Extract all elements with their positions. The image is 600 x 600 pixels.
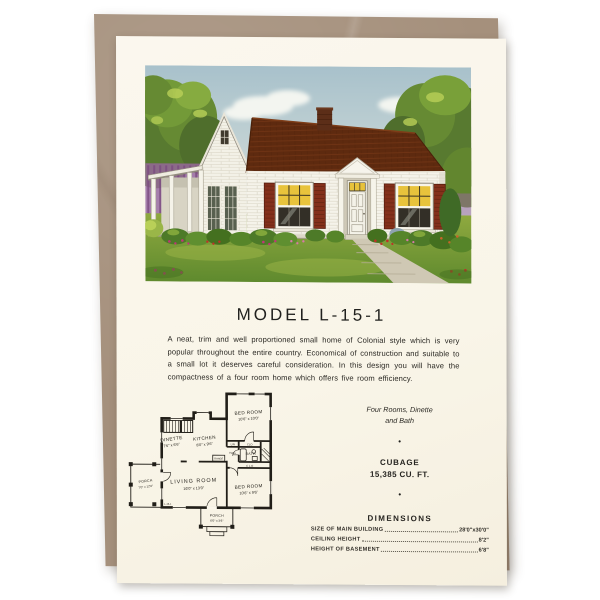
dimension-label: SIZE OF MAIN BUILDING	[311, 526, 384, 533]
room-dims-rear-porch: 6'0" x 3'6"	[210, 519, 223, 523]
closet-label-clo: CLO	[247, 442, 253, 446]
dimension-value: 6'8"	[479, 548, 489, 554]
portico	[335, 158, 379, 240]
cubage-value: 15,385 CU. FT.	[311, 469, 489, 479]
room-label-bath: BATH	[246, 452, 256, 456]
room-summary: Four Rooms, Dinette and Bath	[311, 403, 489, 426]
front-door	[347, 181, 367, 235]
room-dims-bedroom-1: 10'6" x 10'0"	[238, 416, 260, 421]
chimney	[316, 107, 333, 130]
room-dims-bedroom-2: 10'6" x 9'6"	[239, 490, 259, 495]
room-dims-kitchen: 8'0" x 9'6"	[196, 442, 214, 448]
dimension-row-main-building: SIZE OF MAIN BUILDING 28'0"x30'0"	[311, 526, 489, 533]
dotted-leader	[361, 541, 477, 543]
room-label-bedroom-2: BED ROOM	[234, 483, 263, 490]
room-label-living: LIVING ROOM	[170, 477, 217, 485]
room-label-rear-porch: PORCH	[210, 514, 224, 518]
dimension-label: HEIGHT OF BASEMENT	[311, 546, 380, 552]
room-label-bedroom-1: BED ROOM	[234, 409, 263, 416]
model-title: MODEL L-15-1	[116, 304, 506, 327]
dotted-leader	[381, 551, 478, 553]
model-description: A neat, trim and well proportioned small…	[168, 333, 460, 386]
dimension-label: CEILING HEIGHT	[311, 536, 361, 542]
closet-label-lin: LIN	[231, 442, 235, 446]
room-label-hall: HALL	[229, 451, 236, 455]
plan-labels: BED ROOM 10'6" x 10'0" KITCHEN 8'0" x 9'…	[138, 408, 263, 523]
dimension-value: 28'0"x30'0"	[459, 527, 489, 533]
dimension-row-ceiling-height: CEILING HEIGHT 8'2"	[311, 536, 489, 543]
house-illustration	[145, 65, 471, 283]
range-label: RANGE	[214, 457, 223, 460]
plan-model-label: L-15-1	[164, 503, 172, 506]
bullet-separator: •	[311, 490, 489, 499]
room-summary-line-2: and Bath	[311, 414, 489, 426]
floor-plan: BED ROOM 10'6" x 10'0" KITCHEN 8'0" x 9'…	[121, 388, 325, 561]
cubage-heading: CUBAGE	[311, 457, 489, 467]
dotted-leader	[384, 531, 458, 533]
closet-label-clo-2: C L O	[246, 464, 253, 468]
room-label-dinette: DINETTE	[160, 435, 183, 443]
room-label-kitchen: KITCHEN	[193, 435, 216, 442]
dimension-value: 8'2"	[479, 538, 489, 544]
bullet-separator: •	[311, 437, 489, 446]
dimensions-heading: DIMENSIONS	[311, 513, 489, 523]
dimension-row-basement-height: HEIGHT OF BASEMENT 6'8"	[311, 546, 489, 553]
room-dims-dinette: 7'6" x 6'6"	[163, 442, 181, 448]
room-dims-living: 16'0" x 13'0"	[183, 486, 205, 491]
house-plan-card: MODEL L-15-1 A neat, trim and well propo…	[116, 36, 507, 586]
shuttered-window-left	[264, 182, 325, 232]
shuttered-window-right	[384, 183, 445, 233]
room-dims-side-porch: 7'0" x 12'0"	[138, 484, 153, 490]
specs-column: Four Rooms, Dinette and Bath • CUBAGE 15…	[311, 403, 489, 553]
